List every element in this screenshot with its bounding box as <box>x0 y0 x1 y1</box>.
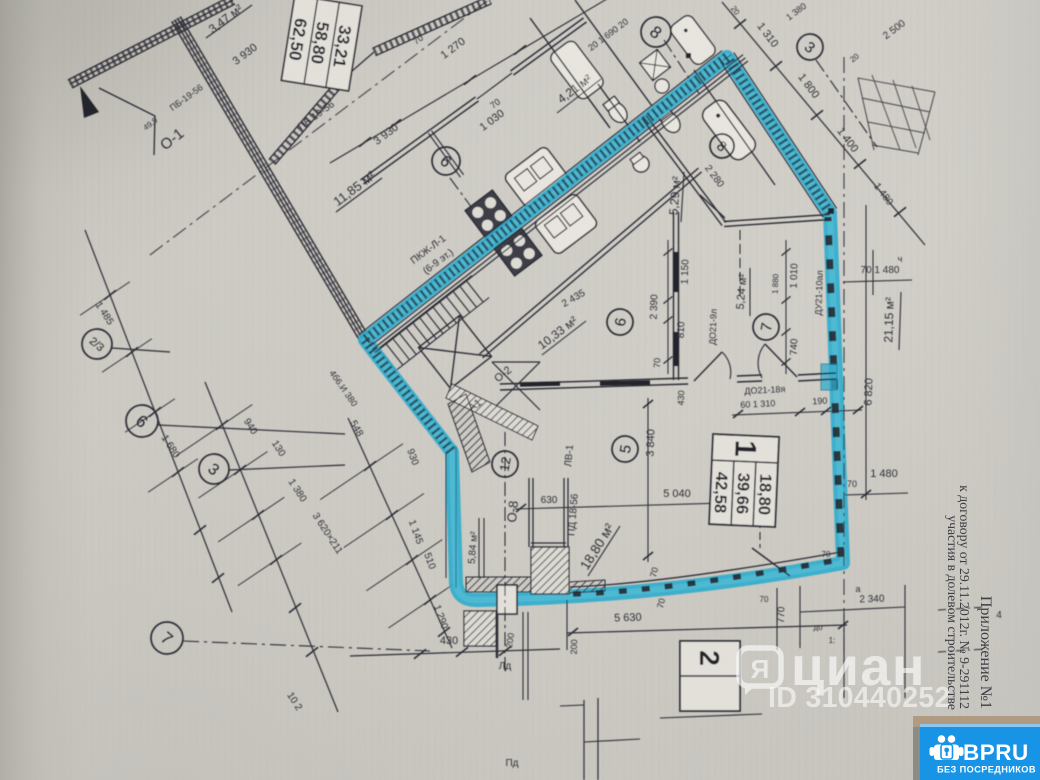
svg-text:Я: Я <box>751 654 770 684</box>
svg-text:70: 70 <box>652 358 662 368</box>
svg-text:18,80: 18,80 <box>755 473 775 515</box>
svg-text:430: 430 <box>440 635 458 647</box>
svg-text:Пд: Пд <box>505 758 518 769</box>
svg-text:70 1 480: 70 1 480 <box>861 265 900 276</box>
svg-text:740: 740 <box>789 338 801 355</box>
svg-text:39,66: 39,66 <box>733 472 753 514</box>
svg-text:2 340: 2 340 <box>859 594 885 606</box>
svg-text:участия в долевом строительств: участия в долевом строительстве <box>945 515 960 710</box>
svg-text:1: 1 <box>728 439 762 457</box>
svg-text:1 880: 1 880 <box>771 273 781 294</box>
svg-text:2: 2 <box>694 650 725 666</box>
svg-text:1 150: 1 150 <box>680 259 692 285</box>
svg-text:ЛВ-1: ЛВ-1 <box>563 444 576 467</box>
svg-text:42,58: 42,58 <box>711 471 731 513</box>
svg-text:3 840: 3 840 <box>645 429 658 457</box>
svg-text:BPRU: BPRU <box>963 740 1029 765</box>
svg-text:12: 12 <box>497 456 514 473</box>
svg-text:Приложение №1: Приложение №1 <box>977 596 994 709</box>
svg-text:2 390: 2 390 <box>649 294 661 320</box>
svg-text:770: 770 <box>776 606 788 623</box>
svg-text:Лд: Лд <box>499 661 512 672</box>
svg-text:4: 4 <box>996 610 1002 621</box>
svg-text:ДУ21-10ал: ДУ21-10ал <box>813 270 825 316</box>
svg-text:21,15 м²: 21,15 м² <box>881 297 897 343</box>
svg-text:ID 310440252: ID 310440252 <box>768 682 951 714</box>
svg-text:до: до <box>813 623 823 632</box>
svg-text:а: а <box>855 584 860 594</box>
svg-text:630: 630 <box>541 495 558 506</box>
svg-text:200: 200 <box>569 639 580 654</box>
svg-text:О-8: О-8 <box>504 500 521 523</box>
svg-text:70: 70 <box>847 479 857 489</box>
svg-text:70: 70 <box>822 550 831 559</box>
svg-text:ДО21-9л: ДО21-9л <box>707 309 718 346</box>
svg-text:430: 430 <box>676 390 687 405</box>
svg-text:6 820: 6 820 <box>863 378 876 406</box>
svg-text:БЕЗ ПОСРЕДНИКОВ: БЕЗ ПОСРЕДНИКОВ <box>937 765 1036 775</box>
svg-text:1 010: 1 010 <box>789 263 801 289</box>
svg-text:5 040: 5 040 <box>663 488 691 500</box>
svg-text:60 1 310: 60 1 310 <box>740 398 776 410</box>
svg-text:810: 810 <box>676 321 688 338</box>
svg-text:ч: ч <box>898 254 903 264</box>
svg-text:70: 70 <box>760 595 769 604</box>
svg-text:1 480: 1 480 <box>870 468 898 480</box>
svg-text:190: 190 <box>812 396 828 407</box>
svg-text:5 630: 5 630 <box>614 612 642 625</box>
